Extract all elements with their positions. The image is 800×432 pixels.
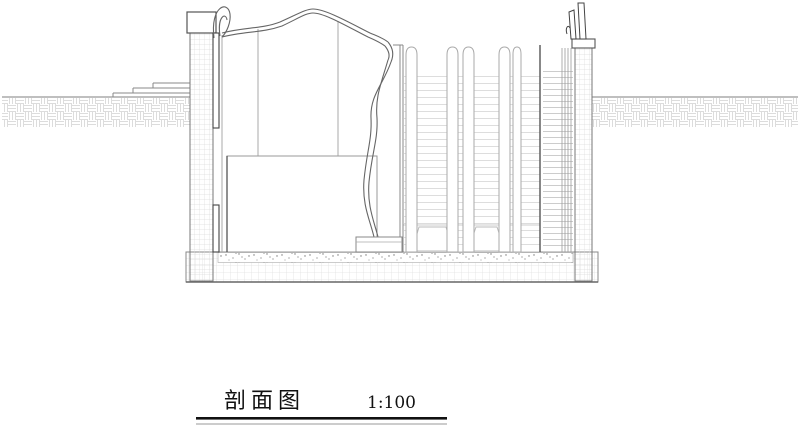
title-rule-thin	[196, 424, 447, 425]
title-block: 剖面图 1:100	[196, 389, 447, 425]
section-drawing: 剖面图 1:100	[0, 0, 800, 432]
balustrade-post	[499, 47, 510, 252]
drawing-title: 剖面图	[224, 389, 305, 414]
stair-run	[543, 68, 573, 252]
title-rule-thick	[196, 417, 447, 420]
canopy-roof	[213, 7, 392, 62]
section-drawing-sheet: 剖面图 1:100	[0, 0, 800, 432]
balustrade-post	[447, 47, 458, 252]
escalator-bank	[393, 45, 573, 252]
balustrade-post	[513, 47, 521, 252]
screed-stipple-band	[218, 253, 573, 263]
left-wall	[187, 12, 219, 281]
floor-slab	[186, 252, 598, 282]
balustrade-post	[463, 47, 474, 252]
wall-cap	[572, 39, 595, 48]
wall-cap	[187, 12, 216, 33]
curtain-base	[356, 237, 402, 252]
central-hall	[222, 21, 377, 252]
railing-posts	[566, 3, 586, 39]
entry-steps	[113, 83, 190, 97]
ground-right	[592, 97, 798, 127]
ground-left	[2, 97, 190, 127]
drawing-scale: 1:100	[367, 393, 416, 413]
balustrade-post	[406, 47, 417, 252]
